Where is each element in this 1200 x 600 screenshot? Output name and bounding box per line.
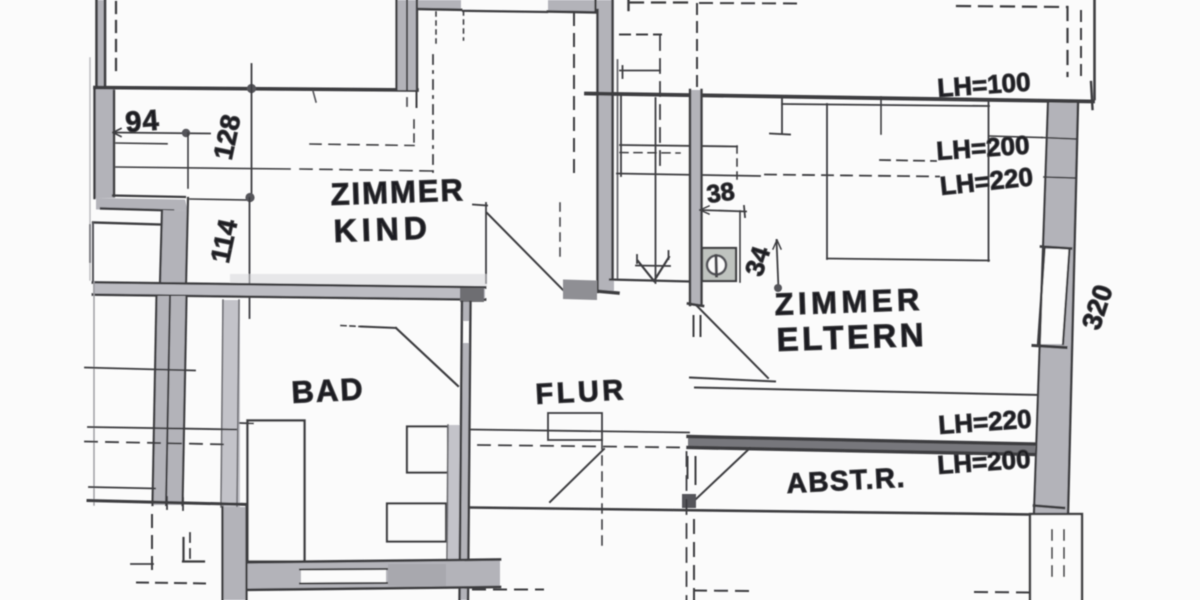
svg-text:FLUR: FLUR xyxy=(535,374,628,411)
svg-text:ABST.R.: ABST.R. xyxy=(786,462,907,499)
svg-text:38: 38 xyxy=(705,177,737,209)
svg-text:ZIMMER: ZIMMER xyxy=(330,172,465,212)
svg-text:BAD: BAD xyxy=(291,371,366,410)
svg-text:ELTERN: ELTERN xyxy=(776,316,928,358)
svg-text:94: 94 xyxy=(124,105,160,139)
svg-text:KIND: KIND xyxy=(333,210,432,249)
